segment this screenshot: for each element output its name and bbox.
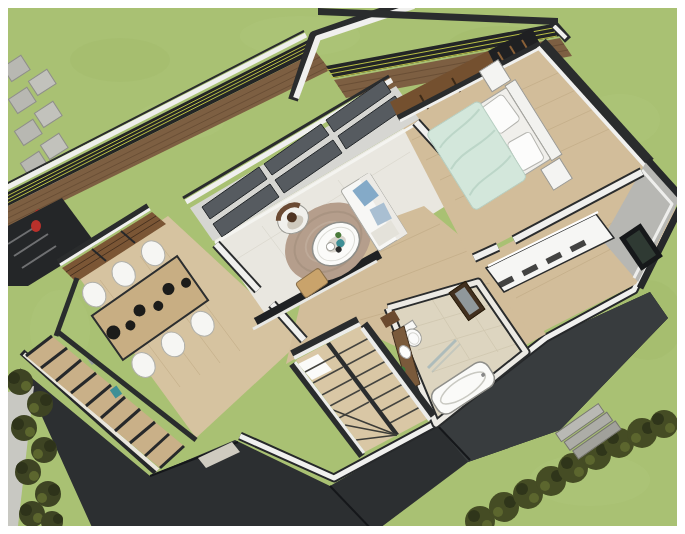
bush: [15, 459, 41, 485]
model-viewport-frame: [0, 0, 685, 534]
bush: [31, 437, 57, 463]
hedge-bush: [650, 410, 678, 438]
red-stored-item: [31, 220, 41, 232]
bush: [27, 391, 53, 417]
bush: [7, 369, 33, 395]
3d-model-viewport[interactable]: [0, 0, 685, 534]
bush: [11, 415, 37, 441]
